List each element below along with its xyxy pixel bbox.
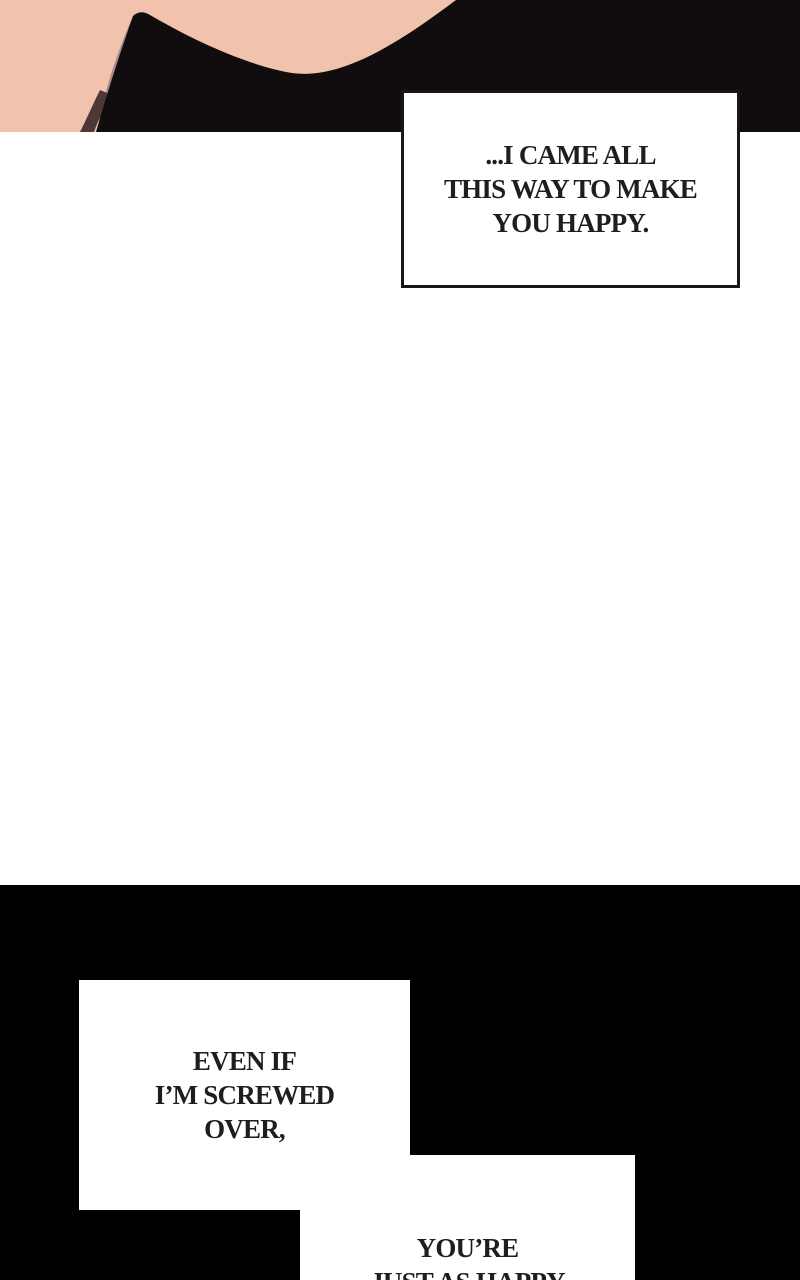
webtoon-page: ...I CAME ALL THIS WAY TO MAKE YOU HAPPY… — [0, 0, 800, 1280]
speech-line: I’M SCREWED — [155, 1078, 334, 1112]
speech-line: YOU HAPPY. — [492, 206, 648, 240]
speech-box-youre: YOU’RE JUST AS HAPPY — [300, 1155, 635, 1280]
speech-line: EVEN IF — [193, 1044, 296, 1078]
speech-line: ...I CAME ALL — [485, 138, 655, 172]
speech-line: YOU’RE — [417, 1231, 519, 1265]
speech-line: JUST AS HAPPY — [370, 1265, 565, 1280]
speech-line: OVER, — [204, 1112, 285, 1146]
speech-box-came-all: ...I CAME ALL THIS WAY TO MAKE YOU HAPPY… — [401, 90, 740, 288]
speech-line: THIS WAY TO MAKE — [444, 172, 697, 206]
